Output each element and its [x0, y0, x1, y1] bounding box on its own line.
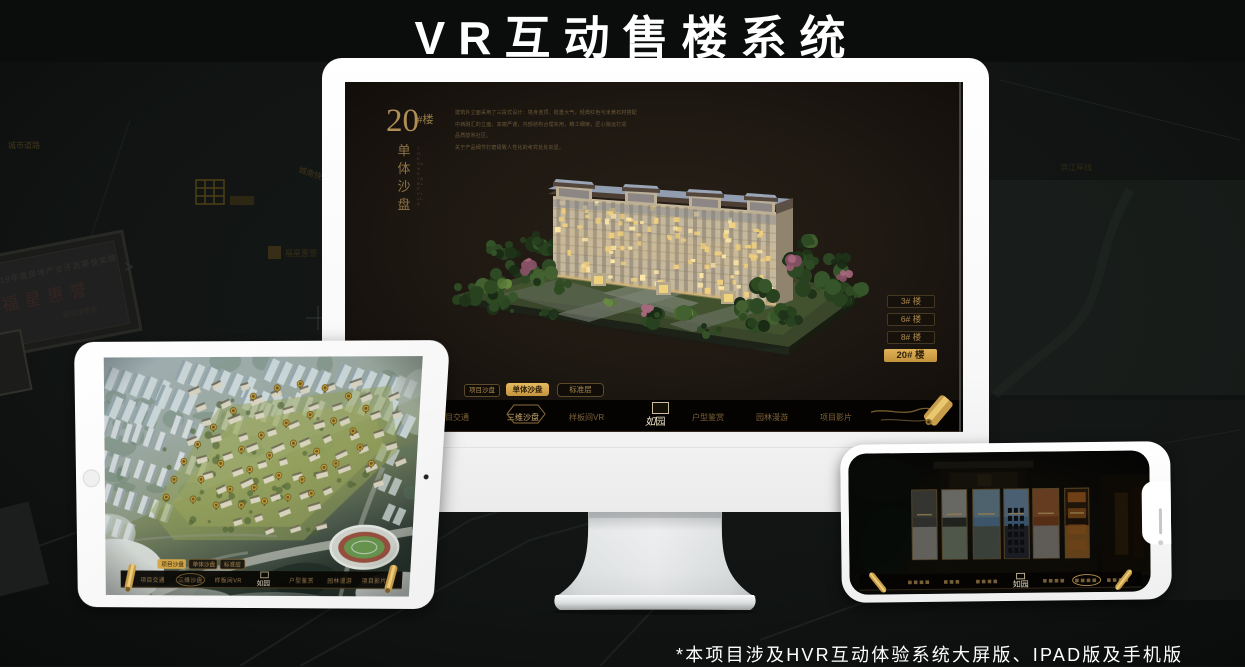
svg-text:项目沙盘: 项目沙盘	[161, 560, 184, 568]
svg-text:样板间VR: 样板间VR	[215, 576, 242, 584]
svg-text:>: >	[124, 259, 133, 276]
svg-text:滨江岸线: 滨江岸线	[1060, 162, 1092, 172]
svg-text:项目影片: 项目影片	[362, 577, 387, 585]
svg-text:福星惠誉: 福星惠誉	[285, 248, 317, 258]
svg-text:户型鉴赏: 户型鉴赏	[289, 576, 314, 584]
svg-text:园林漫游: 园林漫游	[327, 576, 352, 584]
svg-text:三维沙盘: 三维沙盘	[178, 576, 203, 584]
svg-text:城市道路: 城市道路	[8, 140, 40, 150]
svg-text:项目交通: 项目交通	[140, 576, 165, 584]
svg-text:单体沙盘: 单体沙盘	[192, 560, 215, 568]
svg-text:如园: 如园	[1013, 579, 1029, 589]
svg-text:如园: 如园	[257, 579, 270, 587]
svg-text:标准层: 标准层	[224, 560, 241, 568]
